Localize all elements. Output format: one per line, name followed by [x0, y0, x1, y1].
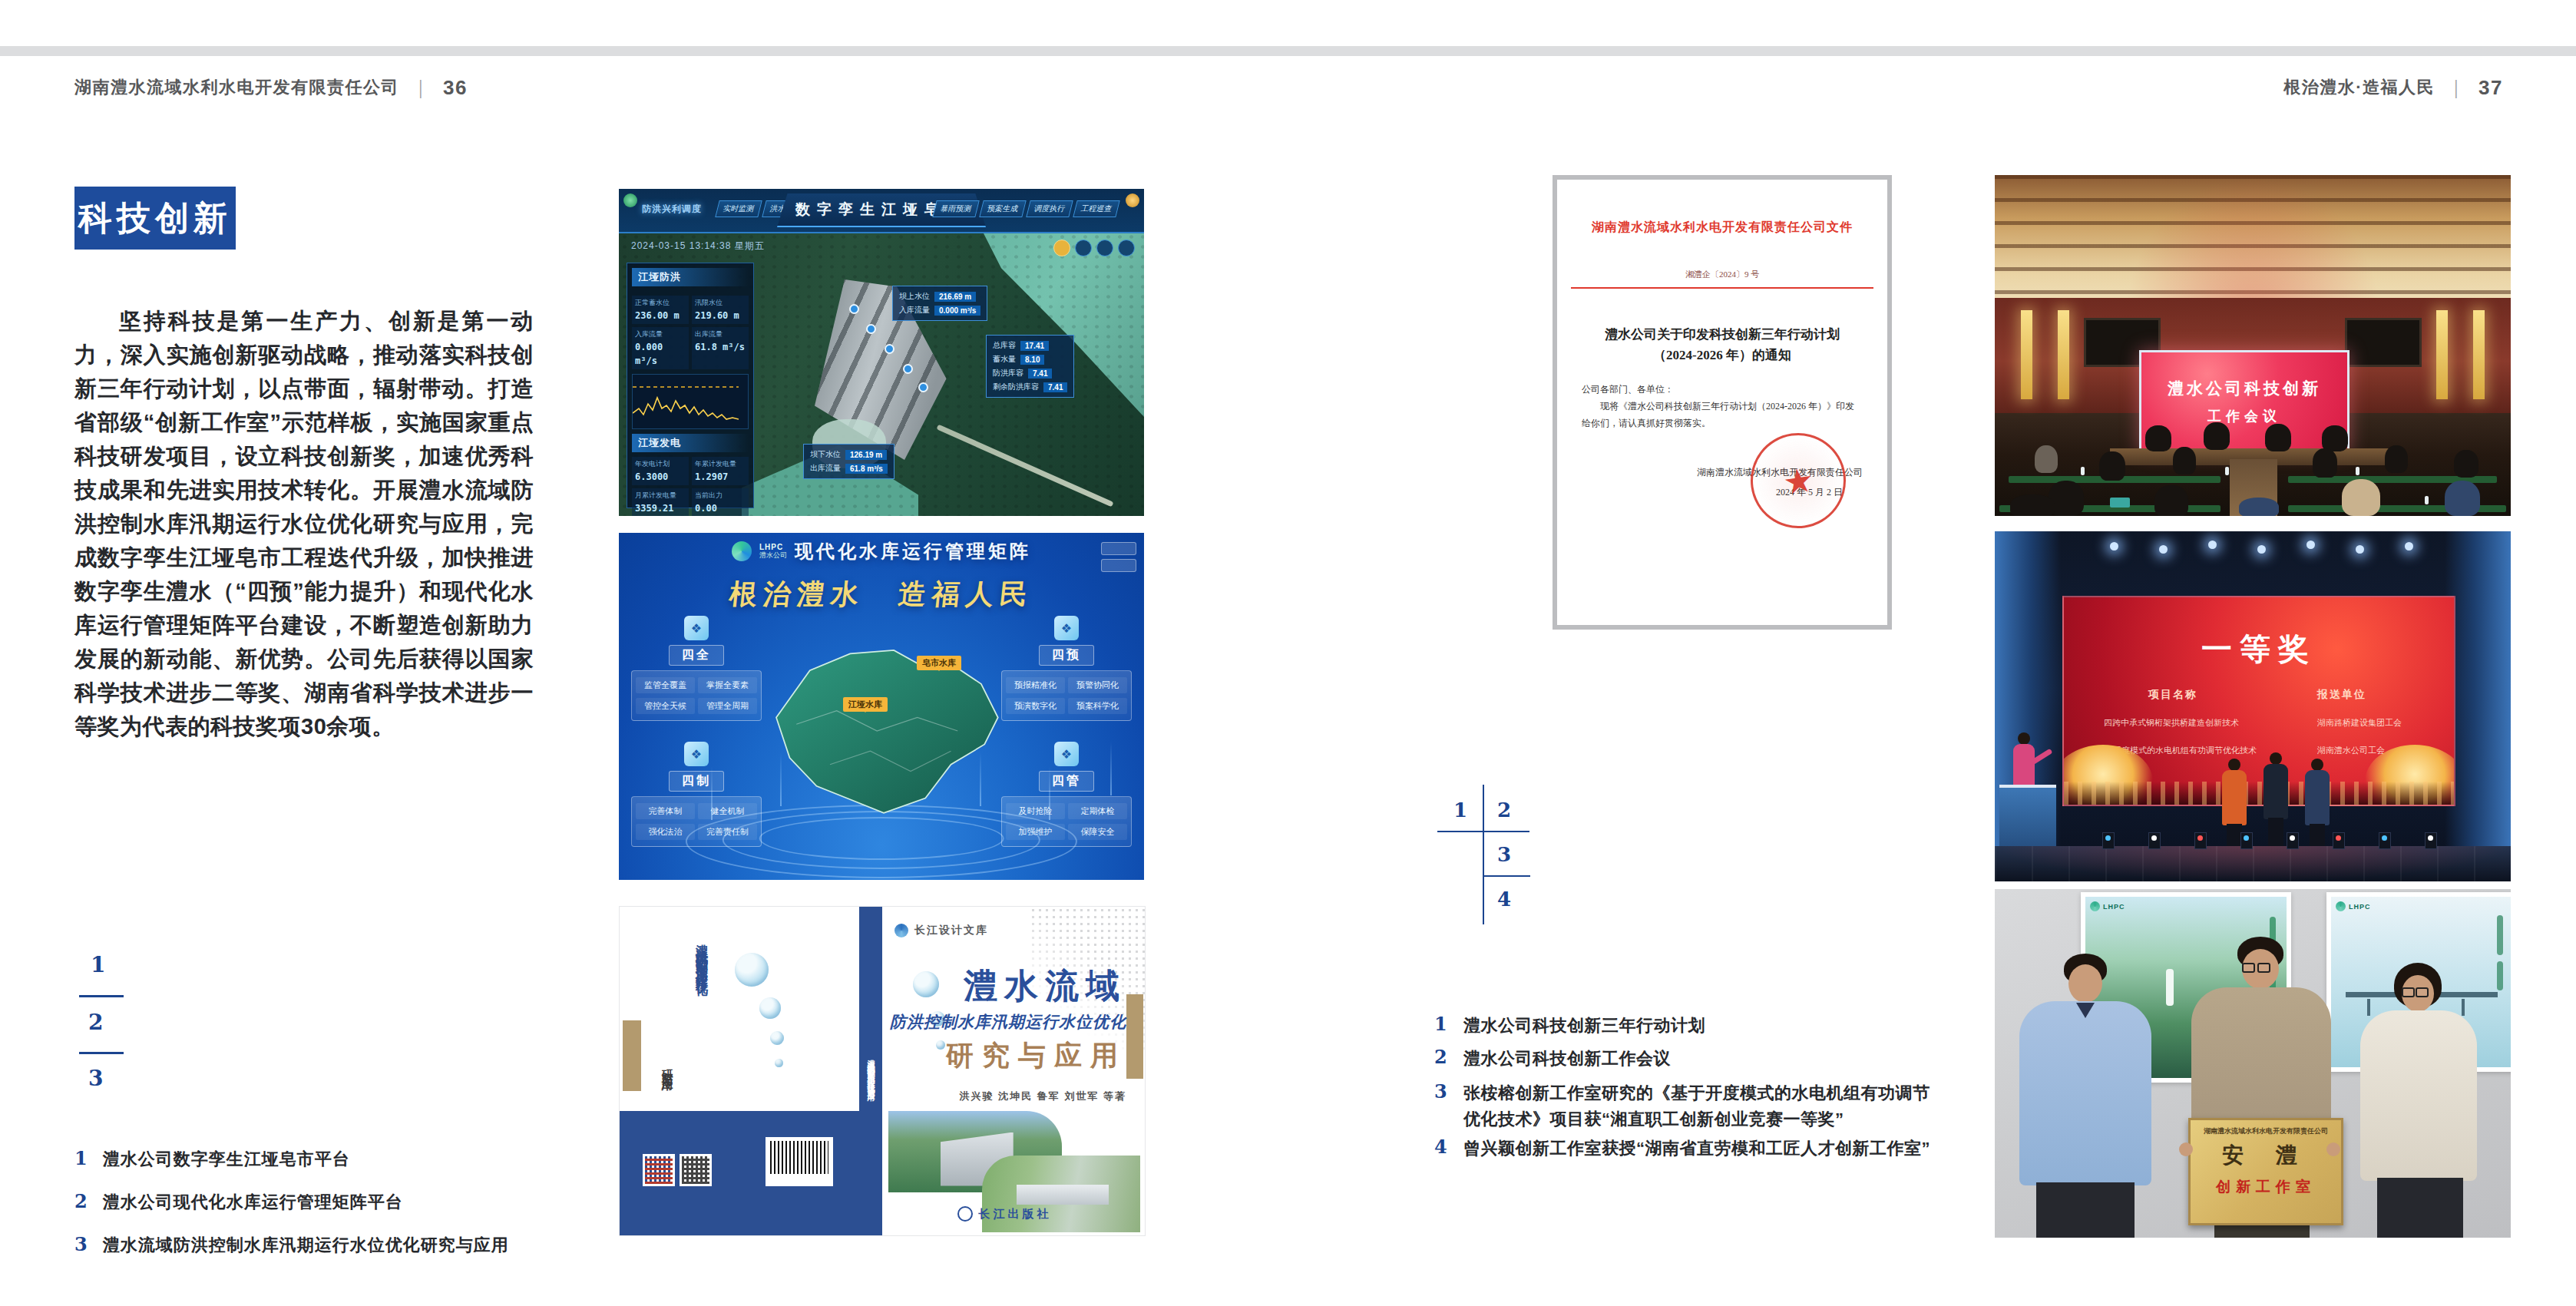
- document-paragraph: 现将《澧水公司科技创新三年行动计划（2024-2026 年）》印发给你们，请认真…: [1582, 398, 1863, 431]
- award-title: 一等奖: [2064, 628, 2454, 670]
- caption-row: 4 曾兴颖创新工作室获授“湖南省直劳模和工匠人才创新工作室”: [1434, 1136, 1943, 1162]
- water-bottle: [2225, 467, 2229, 475]
- logo-abbr: LHPC: [759, 543, 787, 551]
- settings-icon[interactable]: [1118, 240, 1135, 256]
- project-name: 四跨中承式钢桁架拱桥建造创新技术: [2104, 717, 2239, 729]
- caption-row: 3 澧水流域防洪控制水库汛期运行水位优化研究与应用: [74, 1233, 509, 1257]
- tab[interactable]: 暴雨预测: [932, 200, 979, 217]
- unit-name: 湖南路桥建设集团工会: [2317, 717, 2402, 729]
- document-title: 澧水公司关于印发科技创新三年行动计划 （2024-2026 年）的通知: [1557, 324, 1887, 365]
- attendee-silhouette: [2313, 448, 2337, 478]
- stat-cell: 汛限水位219.60 m: [692, 296, 749, 324]
- publisher-name: 长江出版社: [979, 1207, 1052, 1222]
- panel-item: 完善体制: [636, 803, 695, 819]
- tooltip-row: 总库容17.41: [993, 340, 1067, 351]
- attendee-silhouette: [2099, 451, 2125, 481]
- tooltip-row: 蓄水量8.10: [993, 354, 1067, 365]
- stat-cell: 月累计发电量3359.21: [632, 488, 689, 516]
- panel-icon: ❖: [1054, 742, 1079, 766]
- locate-icon[interactable]: [1096, 240, 1113, 256]
- badge-icon: [1126, 193, 1139, 207]
- speaker-silhouette: [2145, 425, 2171, 451]
- tooltip-row: 防洪库容7.41: [993, 368, 1067, 379]
- caption-text: 澧水流域防洪控制水库汛期运行水位优化研究与应用: [103, 1234, 509, 1257]
- map-marker: [918, 382, 928, 392]
- barcode: [766, 1137, 833, 1186]
- panel-title: 四制: [669, 771, 724, 792]
- tab[interactable]: 预案生成: [979, 200, 1026, 217]
- stage-fixture: [2425, 832, 2437, 849]
- panel-item: 预警协同化: [1068, 677, 1127, 693]
- document-header: 湖南澧水流域水利水电开发有限责任公司文件: [1557, 220, 1887, 236]
- qr-code: [680, 1154, 712, 1186]
- figure-index-3: 3: [1497, 843, 1511, 866]
- caption-number: 2: [1434, 1046, 1453, 1068]
- poster-logo: LHPC: [2336, 901, 2371, 911]
- panel-item: 加强维护: [1006, 824, 1065, 840]
- series-name: 长江设计文库: [914, 924, 988, 937]
- user-icon[interactable]: [1053, 240, 1070, 256]
- caption-text: 张桉榕创新工作室研究的《基于开度模式的水电机组有功调节优化技术》项目获“湘直职工…: [1463, 1080, 1943, 1132]
- stats-grid: 正常蓄水位236.00 m 汛限水位219.60 m 入库流量0.000 m³/…: [632, 296, 749, 369]
- info-tooltip: 坝下水位126.19 m 出库流量61.8 m³/s: [803, 444, 894, 479]
- panel-siyu: ❖ 四预 预报精准化 预警协同化 预演数字化 预案科学化: [1006, 616, 1127, 721]
- droplet: [770, 1031, 784, 1045]
- toolbar-chip[interactable]: [1101, 559, 1136, 572]
- wall-lamp: [2436, 310, 2448, 399]
- spine-title: 澧水流域防洪控制水库汛期运行水位优化研究与应用: [865, 1053, 876, 1089]
- panel-item: 掌握全要素: [698, 677, 757, 693]
- company-name: 湖南澧水流域水利水电开发有限责任公司: [74, 76, 399, 99]
- page-top-edge: [0, 46, 2576, 56]
- caption-row: 3 张桉榕创新工作室研究的《基于开度模式的水电机组有功调节优化技术》项目获“湘直…: [1434, 1080, 1943, 1132]
- figure-index-4: 4: [1497, 888, 1511, 911]
- person-right: [2354, 963, 2485, 1238]
- panel-item: 管理全周期: [698, 698, 757, 714]
- stage-light: [2159, 545, 2168, 554]
- figure-index-2: 2: [88, 1010, 103, 1035]
- stage-light: [2208, 541, 2217, 549]
- stage-fixture: [2102, 832, 2115, 849]
- panel-item: 及时抢险: [1006, 803, 1065, 819]
- wall-lamp: [2473, 310, 2485, 399]
- stage-fixture: [2194, 832, 2207, 849]
- water-bottle: [2081, 467, 2085, 475]
- qr-code: [643, 1154, 675, 1186]
- figure-digital-twin-platform: 防洪兴利调度 实时监测 洪水预报 防洪预警 数字孪生江垭皂市 暴雨预测 预案生成…: [619, 189, 1144, 516]
- caption-number: 4: [1434, 1136, 1453, 1158]
- attendee-silhouette: [2385, 445, 2408, 473]
- index-grid-line: [1437, 831, 1529, 832]
- lhpc-logo-icon: [2090, 901, 2100, 911]
- water-level-chart: [632, 374, 749, 429]
- panel-siguan: ❖ 四管 及时抢险 定期体检 加强维护 保障安全: [1006, 742, 1127, 847]
- document-rule: [1571, 287, 1873, 289]
- figure-book-cover: 澧水流域防洪控制水库汛期运行水位优化 研究与应用 澧水流域防洪控制水库汛期运行水…: [619, 906, 1146, 1236]
- index-divider: [79, 1052, 124, 1054]
- attendee-silhouette: [2035, 445, 2058, 473]
- document-title-line: 澧水公司关于印发科技创新三年行动计划: [1557, 324, 1887, 345]
- panel-sizhi: ❖ 四制 完善体制 健全机制 强化法治 完善责任制: [636, 742, 757, 847]
- tissue-box: [2110, 498, 2130, 508]
- caption-row: 1 澧水公司科技创新三年行动计划: [1434, 1013, 1943, 1039]
- caption-number: 1: [1434, 1013, 1453, 1035]
- map-marker: [849, 304, 859, 314]
- hand: [2179, 1142, 2193, 1156]
- wall-tv: [2345, 318, 2422, 367]
- basin-map: [749, 623, 1018, 838]
- panel-item: 定期体检: [1068, 803, 1127, 819]
- tooltip-row: 入库流量0.000 m³/s: [899, 305, 980, 316]
- index-divider: [79, 995, 124, 997]
- attendee-silhouette: [2454, 450, 2478, 478]
- left-stat-panel: 江垭防洪 正常蓄水位236.00 m 汛限水位219.60 m 入库流量0.00…: [627, 263, 754, 508]
- header-left: 湖南澧水流域水利水电开发有限责任公司 ｜ 36: [74, 75, 468, 100]
- caption-text: 澧水公司科技创新工作会议: [1463, 1046, 1943, 1072]
- matrix-title: 现代化水库运行管理矩阵: [795, 539, 1031, 564]
- panel-header: 江垭防洪: [632, 268, 749, 286]
- stage-light: [2257, 545, 2266, 554]
- stat-cell: 正常蓄水位236.00 m: [632, 296, 689, 324]
- document-title-line: （2024-2026 年）的通知: [1557, 345, 1887, 365]
- speaker-silhouette: [2204, 422, 2230, 450]
- lhpc-logo-text: LHPC: [2349, 903, 2371, 911]
- header-right: 根治澧水·造福人民 ｜ 37: [2283, 75, 2503, 100]
- document-number: 湘澧企〔2024〕9 号: [1557, 269, 1887, 280]
- caption-text: 曾兴颖创新工作室获授“湖南省直劳模和工匠人才创新工作室”: [1463, 1136, 1943, 1162]
- caption-number: 3: [1434, 1080, 1453, 1103]
- column-header: 项目名称: [2148, 688, 2197, 702]
- section-title-box: 科技创新: [74, 187, 236, 250]
- index-grid-line: [1483, 785, 1484, 924]
- speaker-silhouette: [2322, 425, 2348, 451]
- info-tooltip: 总库容17.41 蓄水量8.10 防洪库容7.41 剩余防洪库容7.41: [986, 335, 1074, 398]
- stage-fixture: [2379, 832, 2391, 849]
- droplet: [759, 997, 781, 1019]
- seal-star-icon: ★: [1781, 459, 1816, 502]
- publisher: 长江出版社: [882, 1206, 1126, 1222]
- book-title: 澧水流域: [882, 964, 1126, 1009]
- plaque-company-line: 湖南澧水流域水利水电开发有限责任公司: [2195, 1126, 2336, 1136]
- panel-items: 预报精准化 预警协同化 预演数字化 预案科学化: [1001, 670, 1132, 721]
- panel-title: 四预: [1039, 645, 1094, 666]
- cover-accent-block: [1126, 994, 1143, 1079]
- tab-group-right: 暴雨预测 预案生成 调度执行 工程巡查: [934, 200, 1118, 217]
- info-tooltip: 坝上水位216.69 m 入库流量0.000 m³/s: [892, 286, 987, 321]
- datetime: 2024-03-15 13:14:38 星期五: [631, 240, 765, 253]
- panel-title: 四管: [1039, 771, 1094, 792]
- attendee-silhouette: [2239, 498, 2279, 516]
- city-silhouette: [2064, 782, 2454, 805]
- attendee-silhouette: [2445, 481, 2480, 516]
- led-screen: 一等奖 项目名称 报送单位 四跨中承式钢桁架拱桥建造创新技术 湖南路桥建设集团工…: [2062, 596, 2455, 806]
- figure-official-document: 湖南澧水流域水利水电开发有限责任公司文件 湘澧企〔2024〕9 号 澧水公司关于…: [1553, 175, 1892, 630]
- panel-item: 预报精准化: [1006, 677, 1065, 693]
- series-logo-icon: [894, 924, 908, 937]
- book-authors: 洪兴骏 沈坤民 鲁军 刘世军 等著: [882, 1089, 1126, 1103]
- stat-cell: 出库流量61.8 m³/s: [692, 327, 749, 369]
- panel-icon: ❖: [684, 616, 709, 640]
- document-salutation: 公司各部门、各单位：: [1582, 381, 1863, 398]
- panel-item: 预演数字化: [1006, 698, 1065, 714]
- lhpc-logo-text: LHPC: [2103, 903, 2125, 911]
- poster-logo: LHPC: [2090, 901, 2125, 911]
- map-marker: [866, 324, 876, 334]
- stage-light: [2405, 542, 2413, 551]
- caption-text: 澧水公司现代化水库运行管理矩阵平台: [103, 1191, 403, 1214]
- panel-items: 及时抢险 定期体检 加强维护 保障安全: [1001, 796, 1132, 847]
- reservoir-tag[interactable]: 江垭水库: [843, 697, 888, 712]
- figure-index-1: 1: [1453, 798, 1467, 822]
- panel-items: 完善体制 健全机制 强化法治 完善责任制: [631, 796, 762, 847]
- document-body: 公司各部门、各单位： 现将《澧水公司科技创新三年行动计划（2024-2026 年…: [1582, 381, 1863, 431]
- plaque-subtitle: 创新工作室: [2195, 1177, 2336, 1197]
- book-subtitle: 防洪控制水库汛期运行水位优化: [882, 1011, 1126, 1033]
- caption-row: 2 澧水公司现代化水库运行管理矩阵平台: [74, 1190, 403, 1214]
- section-title: 科技创新: [78, 196, 232, 241]
- droplet: [735, 953, 769, 987]
- map-marker: [885, 344, 894, 354]
- figure-index-2: 2: [1497, 798, 1511, 822]
- logo-icon: [623, 193, 637, 207]
- series-logo: 长江设计文库: [894, 924, 988, 937]
- panel-item: 强化法治: [636, 824, 695, 840]
- tab[interactable]: 调度执行: [1026, 200, 1073, 217]
- stat-cell: 当前出力0.00: [692, 488, 749, 516]
- map-marker: [903, 364, 913, 374]
- stat-cell: 年累计发电量1.2907: [692, 457, 749, 485]
- stage-fixture: [2333, 832, 2345, 849]
- panel-item: 监管全覆盖: [636, 677, 695, 693]
- attendee-silhouette: [2010, 494, 2055, 516]
- page-number-left: 36: [443, 76, 468, 100]
- logo-name: 澧水公司: [759, 551, 787, 560]
- company-logo-icon: [732, 541, 752, 561]
- hand: [2326, 1142, 2340, 1156]
- caption-text: 澧水公司科技创新三年行动计划: [1463, 1013, 1943, 1039]
- panel-siquan: ❖ 四全 监管全覆盖 掌握全要素 管控全天候 管理全周期: [636, 616, 757, 721]
- poster-calligraphy-stroke: [2497, 915, 2503, 955]
- lhpc-logo-icon: [2336, 901, 2346, 911]
- tab[interactable]: 实时监测: [715, 200, 762, 217]
- caption-row: 2 澧水公司科技创新工作会议: [1434, 1046, 1943, 1072]
- figure-index-3: 3: [88, 1066, 103, 1091]
- person-left: [2013, 954, 2159, 1238]
- attendee-silhouette: [2173, 447, 2196, 474]
- header-divider: ｜: [412, 75, 431, 100]
- stage-fixture: [2240, 832, 2253, 849]
- publisher-logo-icon: [957, 1206, 973, 1222]
- logo-text: LHPC 澧水公司: [759, 543, 787, 560]
- stat-cell: 年发电计划6.3000: [632, 457, 689, 485]
- column-header: 报送单位: [2317, 688, 2366, 702]
- caption-number: 1: [74, 1147, 88, 1169]
- matrix-header: LHPC 澧水公司 现代化水库运行管理矩阵: [619, 539, 1144, 564]
- panel-items: 监管全覆盖 掌握全要素 管控全天候 管理全周期: [631, 670, 762, 721]
- poster-calligraphy-stroke: [2497, 961, 2503, 990]
- screen-title-line1: 澧水公司科技创新: [2168, 378, 2321, 399]
- figure-matrix-platform: LHPC 澧水公司 现代化水库运行管理矩阵 根治澧水 造福人民 皂市水库 江垭水…: [619, 533, 1144, 880]
- droplet: [775, 1059, 783, 1067]
- layers-icon[interactable]: [1075, 240, 1092, 256]
- plaque-name: 安 澧: [2195, 1141, 2336, 1170]
- reservoir-tag[interactable]: 皂市水库: [917, 656, 961, 670]
- stage-fixture: [2287, 832, 2299, 849]
- magazine-spread: 湖南澧水流域水利水电开发有限责任公司 ｜ 36 根治澧水·造福人民 ｜ 37 科…: [0, 0, 2576, 1306]
- panel-item: 预案科学化: [1068, 698, 1127, 714]
- book-title-tail: 研究与应用: [882, 1037, 1126, 1075]
- panel-header: 江垭发电: [632, 434, 749, 452]
- index-grid-line: [1483, 875, 1530, 877]
- stage-light: [2356, 545, 2364, 554]
- caption-row: 1 澧水公司数字孪生江垭皂市平台: [74, 1147, 350, 1171]
- tooltip-row: 剩余防洪库容7.41: [993, 382, 1067, 392]
- toolbar-chip[interactable]: [1101, 542, 1136, 555]
- tab[interactable]: 工程巡查: [1073, 200, 1119, 217]
- cover-accent-block: [623, 1020, 641, 1091]
- panel-item: 保障安全: [1068, 824, 1127, 840]
- tooltip-row: 出库流量61.8 m³/s: [810, 463, 888, 474]
- caption-number: 2: [74, 1190, 88, 1212]
- stage-floor: [1995, 846, 2511, 881]
- figure-meeting-photo: 澧水公司科技创新 工作会议: [1995, 175, 2511, 516]
- caption-text: 澧水公司数字孪生江垭皂市平台: [103, 1148, 350, 1171]
- stage-light: [2110, 542, 2118, 551]
- section-body: 坚持科技是第一生产力、创新是第一动力，深入实施创新驱动战略，推动落实科技创新三年…: [74, 304, 534, 743]
- stat-cell: 入库流量0.000 m³/s: [632, 327, 689, 369]
- stage-light: [2306, 541, 2315, 549]
- slogan: 根治澧水·造福人民: [2283, 76, 2435, 99]
- caption-number: 3: [74, 1233, 88, 1255]
- panel-icon: ❖: [1054, 616, 1079, 640]
- wall-lamp: [2021, 310, 2032, 399]
- waterfall: [2166, 969, 2174, 1006]
- tooltip-row: 坝下水位126.19 m: [810, 449, 888, 460]
- book-spine: 澧水流域防洪控制水库汛期运行水位优化研究与应用: [859, 907, 882, 1235]
- page-number-right: 37: [2478, 76, 2503, 100]
- panel-item: 健全机制: [698, 803, 757, 819]
- attendee-silhouette: [2342, 479, 2380, 516]
- header-divider: ｜: [2447, 75, 2466, 100]
- panel-item: 完善责任制: [698, 824, 757, 840]
- panel-item: 管控全天候: [636, 698, 695, 714]
- speaker-silhouette: [2265, 424, 2291, 451]
- figure-plaque-photo: LHPC LHPC: [1995, 889, 2511, 1238]
- panel-icon: ❖: [684, 742, 709, 766]
- panel-title: 四全: [669, 645, 724, 666]
- toolbar-icons: [1053, 240, 1135, 256]
- attendee-silhouette: [2154, 485, 2188, 516]
- stats-grid: 年发电计划6.3000 年累计发电量1.2907 月累计发电量3359.21 当…: [632, 457, 749, 516]
- figure-award-photo: 一等奖 项目名称 报送单位 四跨中承式钢桁架拱桥建造创新技术 湖南路桥建设集团工…: [1995, 531, 2511, 881]
- matrix-slogan: 根治澧水 造福人民: [619, 576, 1144, 613]
- figure-index-1: 1: [91, 952, 105, 977]
- wall-lamp: [2058, 310, 2069, 399]
- stage-fixture: [2148, 832, 2161, 849]
- unit-name: 湖南澧水公司工会: [2317, 745, 2385, 756]
- mode-badge: 防洪兴利调度: [642, 203, 702, 216]
- innovation-plaque: 湖南澧水流域水利水电开发有限责任公司 安 澧 创新工作室: [2188, 1118, 2343, 1225]
- tooltip-row: 坝上水位216.69 m: [899, 291, 980, 302]
- water-bottle: [2356, 467, 2359, 475]
- official-seal: ★: [1744, 427, 1852, 534]
- dashboard-topbar: 防洪兴利调度 实时监测 洪水预报 防洪预警 数字孪生江垭皂市 暴雨预测 预案生成…: [619, 189, 1144, 233]
- water-bottle: [2425, 496, 2429, 504]
